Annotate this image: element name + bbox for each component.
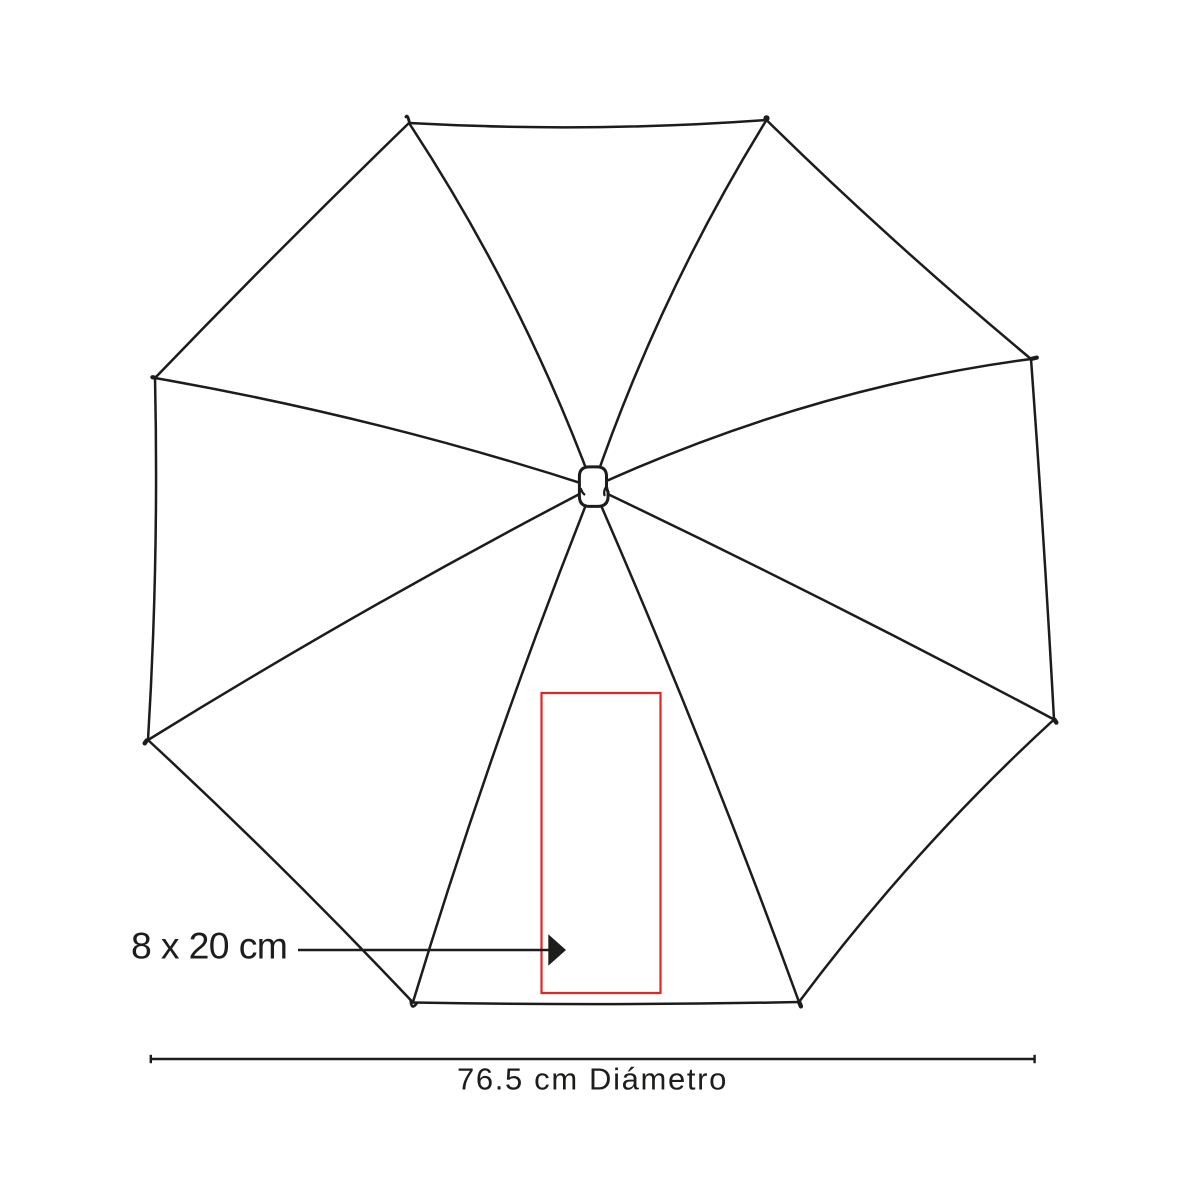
svg-text:76.5 cm Diámetro: 76.5 cm Diámetro — [457, 1062, 728, 1097]
svg-text:8 x 20 cm: 8 x 20 cm — [131, 925, 287, 967]
